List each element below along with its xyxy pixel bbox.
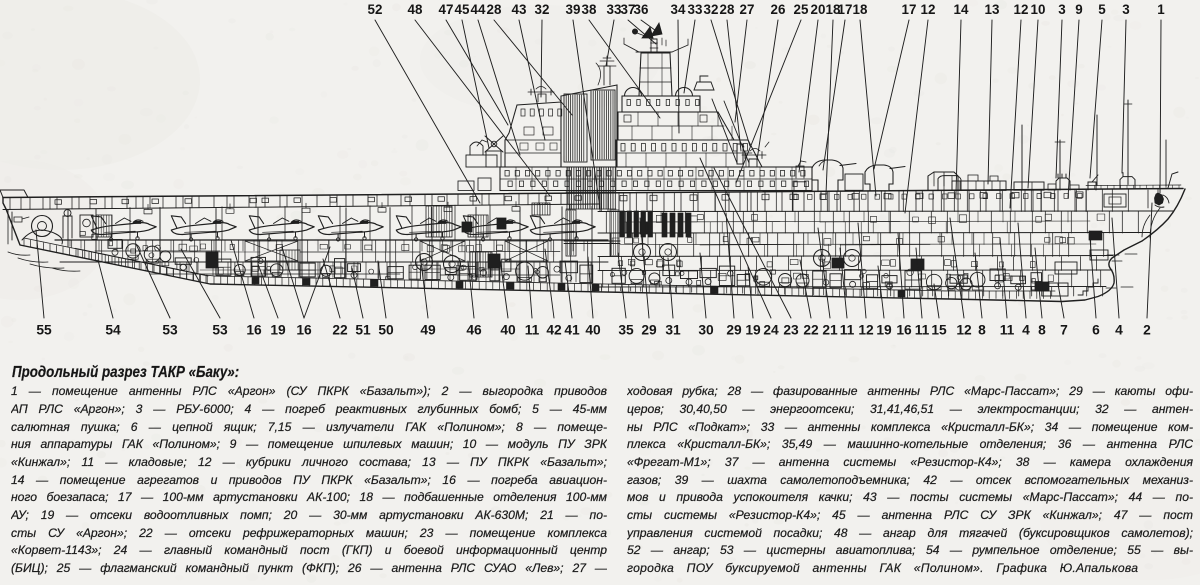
- svg-text:21: 21: [822, 323, 838, 338]
- svg-text:19: 19: [876, 323, 892, 338]
- svg-text:11: 11: [1000, 323, 1015, 338]
- svg-text:28: 28: [487, 2, 502, 17]
- svg-text:32: 32: [535, 2, 550, 17]
- svg-text:11: 11: [840, 323, 855, 338]
- svg-text:31: 31: [665, 323, 681, 338]
- svg-text:16: 16: [896, 323, 912, 338]
- svg-text:5: 5: [1098, 2, 1106, 17]
- svg-text:34: 34: [671, 2, 686, 17]
- svg-text:14: 14: [954, 2, 969, 17]
- svg-text:12: 12: [858, 323, 874, 338]
- svg-text:19: 19: [745, 323, 761, 338]
- svg-text:38: 38: [582, 2, 597, 17]
- svg-text:20: 20: [811, 2, 826, 17]
- svg-text:47: 47: [439, 2, 454, 17]
- svg-text:12: 12: [1014, 2, 1029, 17]
- svg-text:54: 54: [105, 323, 121, 338]
- svg-text:36: 36: [634, 2, 649, 17]
- svg-text:29: 29: [641, 323, 657, 338]
- svg-text:55: 55: [36, 323, 52, 338]
- svg-text:25: 25: [794, 2, 809, 17]
- svg-text:12: 12: [956, 323, 972, 338]
- svg-text:53: 53: [162, 323, 178, 338]
- svg-text:46: 46: [466, 323, 482, 338]
- svg-text:48: 48: [408, 2, 423, 17]
- svg-text:33: 33: [688, 2, 703, 17]
- svg-text:30: 30: [698, 323, 714, 338]
- svg-text:8: 8: [1038, 323, 1046, 338]
- svg-text:35: 35: [618, 323, 634, 338]
- svg-text:49: 49: [420, 323, 436, 338]
- svg-text:7: 7: [1060, 323, 1068, 338]
- svg-text:52: 52: [368, 2, 383, 17]
- svg-text:22: 22: [803, 323, 819, 338]
- svg-text:27: 27: [740, 2, 755, 17]
- svg-text:45: 45: [455, 2, 470, 17]
- svg-text:13: 13: [985, 2, 1000, 17]
- svg-text:43: 43: [512, 2, 527, 17]
- svg-text:23: 23: [783, 323, 799, 338]
- svg-text:50: 50: [378, 323, 394, 338]
- svg-text:1: 1: [1157, 2, 1165, 17]
- svg-text:40: 40: [585, 323, 601, 338]
- svg-text:18: 18: [853, 2, 868, 17]
- svg-text:16: 16: [296, 323, 312, 338]
- svg-text:24: 24: [763, 323, 779, 338]
- svg-text:44: 44: [471, 2, 486, 17]
- svg-text:33: 33: [607, 2, 622, 17]
- svg-text:17: 17: [902, 2, 917, 17]
- svg-text:11: 11: [915, 323, 930, 338]
- svg-text:4: 4: [1115, 323, 1123, 338]
- svg-text:40: 40: [500, 323, 516, 338]
- svg-text:32: 32: [704, 2, 719, 17]
- svg-text:11: 11: [525, 323, 540, 338]
- svg-text:12: 12: [921, 2, 936, 17]
- svg-text:51: 51: [355, 323, 371, 338]
- svg-text:39: 39: [566, 2, 581, 17]
- svg-text:6: 6: [1092, 323, 1100, 338]
- svg-text:19: 19: [270, 323, 286, 338]
- svg-text:3: 3: [1122, 2, 1129, 17]
- svg-text:53: 53: [212, 323, 228, 338]
- svg-text:41: 41: [564, 323, 580, 338]
- svg-text:29: 29: [726, 323, 742, 338]
- svg-text:2: 2: [1143, 323, 1151, 338]
- svg-text:10: 10: [1031, 2, 1046, 17]
- svg-text:15: 15: [931, 323, 947, 338]
- svg-text:9: 9: [1075, 2, 1082, 17]
- svg-text:28: 28: [720, 2, 735, 17]
- svg-text:26: 26: [771, 2, 786, 17]
- svg-text:3: 3: [1058, 2, 1065, 17]
- svg-text:22: 22: [332, 323, 348, 338]
- svg-text:17: 17: [838, 2, 853, 17]
- svg-text:42: 42: [546, 323, 562, 338]
- svg-text:16: 16: [246, 323, 262, 338]
- svg-text:4: 4: [1022, 323, 1030, 338]
- svg-text:8: 8: [978, 323, 986, 338]
